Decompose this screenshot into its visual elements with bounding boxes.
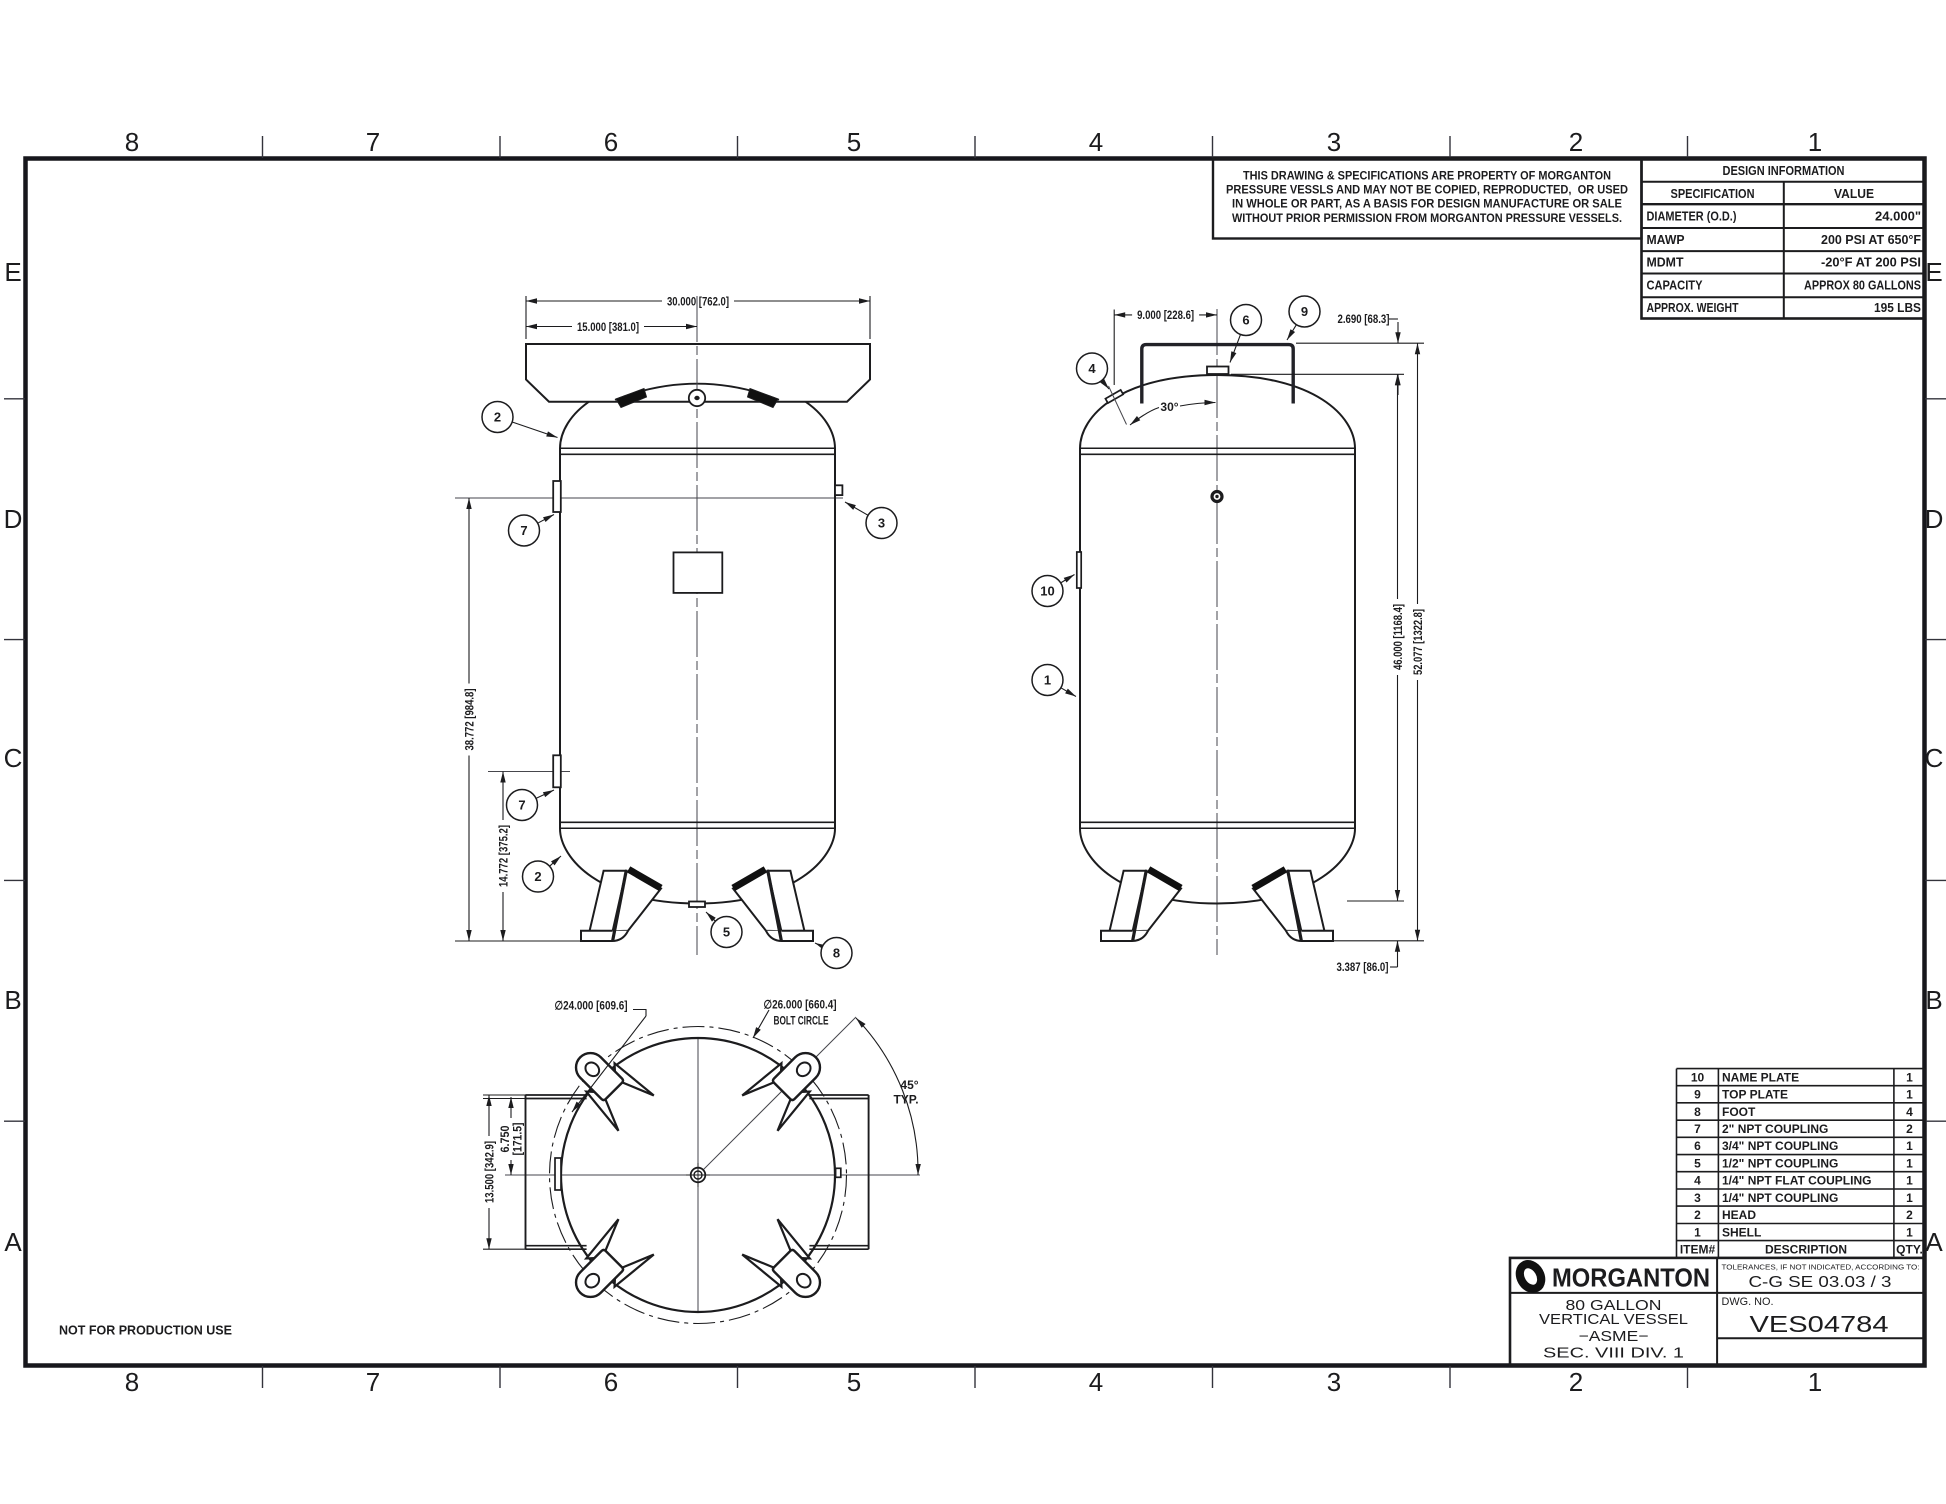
svg-text:5: 5 <box>847 1367 861 1397</box>
svg-text:ITEM#: ITEM# <box>1680 1243 1716 1257</box>
svg-text:6: 6 <box>604 127 618 157</box>
svg-text:1/2" NPT COUPLING: 1/2" NPT COUPLING <box>1722 1157 1838 1171</box>
svg-text:8: 8 <box>833 946 840 961</box>
svg-text:1: 1 <box>1808 127 1822 157</box>
svg-text:1: 1 <box>1906 1139 1913 1153</box>
svg-text:4: 4 <box>1906 1105 1913 1119</box>
svg-text:6: 6 <box>604 1367 618 1397</box>
svg-text:3: 3 <box>878 516 885 531</box>
svg-text:9.000 [228.6]: 9.000 [228.6] <box>1137 308 1194 322</box>
svg-text:∅26.000 [660.4]: ∅26.000 [660.4] <box>764 997 837 1011</box>
svg-text:45°: 45° <box>900 1078 918 1092</box>
svg-text:24.000": 24.000" <box>1875 210 1921 224</box>
svg-text:2: 2 <box>1906 1208 1913 1222</box>
svg-text:THIS DRAWING & SPECIFICATIONS: THIS DRAWING & SPECIFICATIONS ARE PROPER… <box>1243 169 1611 183</box>
svg-text:SHELL: SHELL <box>1722 1225 1761 1239</box>
svg-text:200 PSI AT 650°F: 200 PSI AT 650°F <box>1821 233 1921 247</box>
svg-text:2: 2 <box>534 869 541 884</box>
svg-text:46.000 [1168.4]: 46.000 [1168.4] <box>1391 604 1405 670</box>
svg-text:MDMT: MDMT <box>1647 256 1684 270</box>
svg-text:SPECIFICATION: SPECIFICATION <box>1671 187 1755 201</box>
svg-text:10: 10 <box>1691 1071 1705 1085</box>
svg-text:14.772 [375.2]: 14.772 [375.2] <box>496 825 510 887</box>
svg-text:2: 2 <box>1906 1122 1913 1136</box>
svg-text:195 LBS: 195 LBS <box>1874 301 1921 315</box>
svg-text:CAPACITY: CAPACITY <box>1647 278 1704 292</box>
svg-text:1: 1 <box>1906 1191 1913 1205</box>
svg-text:MORGANTON: MORGANTON <box>1552 1263 1710 1293</box>
svg-text:5: 5 <box>1694 1157 1701 1171</box>
svg-text:E: E <box>1925 257 1942 287</box>
svg-text:E: E <box>4 257 21 287</box>
svg-text:MAWP: MAWP <box>1647 233 1685 247</box>
svg-text:3/4" NPT COUPLING: 3/4" NPT COUPLING <box>1722 1139 1838 1153</box>
svg-text:3.387 [86.0]: 3.387 [86.0] <box>1337 960 1389 974</box>
svg-text:2.690 [68.3]: 2.690 [68.3] <box>1338 312 1390 326</box>
svg-text:4: 4 <box>1088 361 1096 376</box>
svg-text:4: 4 <box>1089 1367 1103 1397</box>
svg-text:WITHOUT PRIOR PERMISSION FROM: WITHOUT PRIOR PERMISSION FROM MORGANTON … <box>1232 211 1622 225</box>
svg-text:13.500 [342.9]: 13.500 [342.9] <box>482 1141 496 1203</box>
svg-text:1: 1 <box>1906 1157 1913 1171</box>
svg-text:3: 3 <box>1694 1191 1701 1205</box>
svg-text:-20°F AT 200 PSI: -20°F AT 200 PSI <box>1821 256 1921 270</box>
svg-text:9: 9 <box>1694 1088 1701 1102</box>
svg-text:4: 4 <box>1089 127 1103 157</box>
svg-text:HEAD: HEAD <box>1722 1208 1756 1222</box>
svg-text:A: A <box>1925 1227 1943 1257</box>
svg-text:1: 1 <box>1906 1225 1913 1239</box>
svg-text:2: 2 <box>1694 1208 1701 1222</box>
svg-text:2" NPT COUPLING: 2" NPT COUPLING <box>1722 1122 1828 1136</box>
svg-text:1: 1 <box>1694 1225 1701 1239</box>
svg-text:QTY.: QTY. <box>1896 1243 1923 1257</box>
svg-text:7: 7 <box>366 1367 380 1397</box>
svg-text:1: 1 <box>1906 1088 1913 1102</box>
svg-text:DIAMETER (O.D.): DIAMETER (O.D.) <box>1647 210 1737 224</box>
svg-text:7: 7 <box>518 798 525 813</box>
svg-text:SEC. VIII DIV. 1: SEC. VIII DIV. 1 <box>1543 1345 1684 1361</box>
svg-text:8: 8 <box>125 127 139 157</box>
svg-text:DESIGN INFORMATION: DESIGN INFORMATION <box>1723 164 1845 178</box>
svg-text:C: C <box>1925 743 1944 773</box>
svg-text:5: 5 <box>847 127 861 157</box>
svg-text:[171.5]: [171.5] <box>510 1123 524 1156</box>
svg-text:TYP.: TYP. <box>893 1093 918 1107</box>
svg-text:7: 7 <box>366 127 380 157</box>
svg-text:B: B <box>1925 985 1942 1015</box>
svg-text:2: 2 <box>1569 1367 1583 1397</box>
svg-text:6: 6 <box>1242 313 1249 328</box>
svg-text:D: D <box>1925 504 1944 534</box>
svg-text:3: 3 <box>1327 1367 1341 1397</box>
svg-text:BOLT CIRCLE: BOLT CIRCLE <box>774 1014 829 1028</box>
svg-text:IN WHOLE OR PART, AS A BASIS F: IN WHOLE OR PART, AS A BASIS FOR DESIGN … <box>1232 197 1622 211</box>
svg-text:8: 8 <box>1694 1105 1701 1119</box>
svg-text:1: 1 <box>1906 1071 1913 1085</box>
svg-text:VES04784: VES04784 <box>1750 1311 1889 1337</box>
svg-text:TOP PLATE: TOP PLATE <box>1722 1088 1788 1102</box>
svg-text:1: 1 <box>1906 1174 1913 1188</box>
svg-text:DESCRIPTION: DESCRIPTION <box>1765 1243 1847 1257</box>
svg-text:30.000 [762.0]: 30.000 [762.0] <box>667 294 729 308</box>
svg-text:B: B <box>4 985 21 1015</box>
svg-text:7: 7 <box>1694 1122 1701 1136</box>
svg-text:C: C <box>4 743 23 773</box>
svg-text:2: 2 <box>1569 127 1583 157</box>
svg-text:10: 10 <box>1040 584 1054 599</box>
svg-text:1/4" NPT FLAT COUPLING: 1/4" NPT FLAT COUPLING <box>1722 1174 1871 1188</box>
svg-text:5: 5 <box>723 925 730 940</box>
svg-text:C-G SE 03.03 / 3: C-G SE 03.03 / 3 <box>1749 1274 1892 1291</box>
svg-text:NAME PLATE: NAME PLATE <box>1722 1071 1799 1085</box>
svg-text:DWG. NO.: DWG. NO. <box>1722 1296 1774 1308</box>
svg-text:15.000 [381.0]: 15.000 [381.0] <box>577 320 639 334</box>
svg-text:3: 3 <box>1327 127 1341 157</box>
svg-text:4: 4 <box>1694 1174 1701 1188</box>
svg-text:8: 8 <box>125 1367 139 1397</box>
svg-text:30°: 30° <box>1160 400 1178 414</box>
svg-text:6: 6 <box>1694 1139 1701 1153</box>
svg-text:VERTICAL VESSEL: VERTICAL VESSEL <box>1539 1312 1688 1328</box>
svg-text:∅24.000 [609.6]: ∅24.000 [609.6] <box>555 998 628 1012</box>
svg-text:52.077 [1322.8]: 52.077 [1322.8] <box>1411 609 1425 675</box>
svg-text:1: 1 <box>1044 673 1051 688</box>
svg-text:1/4" NPT COUPLING: 1/4" NPT COUPLING <box>1722 1191 1838 1205</box>
svg-text:A: A <box>4 1227 22 1257</box>
svg-text:FOOT: FOOT <box>1722 1105 1756 1119</box>
svg-text:NOT FOR PRODUCTION USE: NOT FOR PRODUCTION USE <box>59 1324 232 1338</box>
svg-text:D: D <box>4 504 23 534</box>
svg-text:APPROX. WEIGHT: APPROX. WEIGHT <box>1647 301 1739 315</box>
svg-text:9: 9 <box>1301 304 1308 319</box>
svg-text:APPROX 80 GALLONS: APPROX 80 GALLONS <box>1804 278 1921 292</box>
svg-text:1: 1 <box>1808 1367 1822 1397</box>
svg-text:−ASME−: −ASME− <box>1579 1329 1649 1345</box>
svg-text:38.772 [984.8]: 38.772 [984.8] <box>462 689 476 751</box>
svg-text:VALUE: VALUE <box>1834 187 1874 201</box>
svg-text:2: 2 <box>494 410 501 425</box>
svg-text:7: 7 <box>520 523 527 538</box>
svg-text:PRESSURE VESSLS AND MAY NOT BE: PRESSURE VESSLS AND MAY NOT BE COPIED, R… <box>1226 183 1628 197</box>
svg-text:TOLERANCES, IF NOT INDICATED,: TOLERANCES, IF NOT INDICATED, ACCORDING … <box>1722 1262 1920 1271</box>
